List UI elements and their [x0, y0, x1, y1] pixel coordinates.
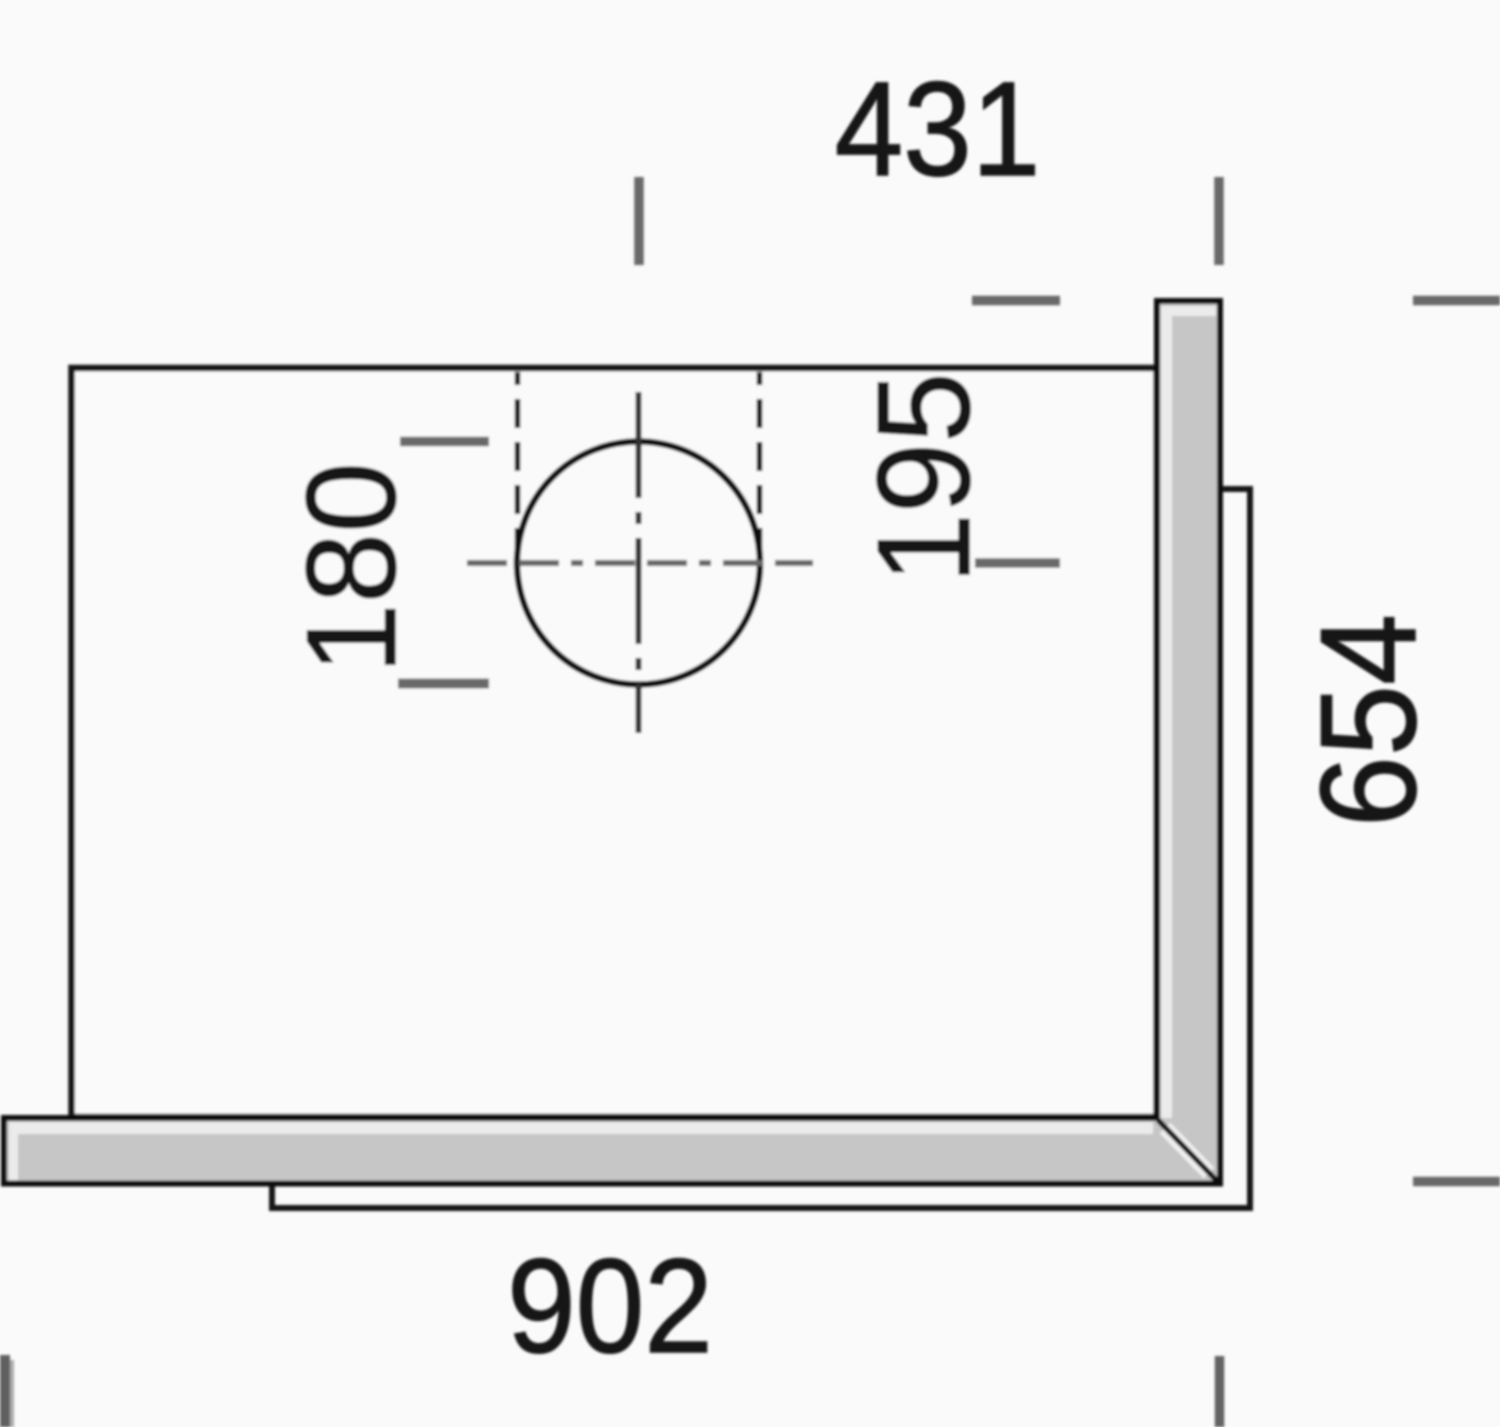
- svg-text:654: 654: [1292, 614, 1443, 827]
- svg-text:195: 195: [851, 372, 998, 583]
- svg-text:180: 180: [280, 462, 422, 674]
- svg-text:431: 431: [835, 54, 1041, 204]
- svg-text:902: 902: [507, 1231, 713, 1381]
